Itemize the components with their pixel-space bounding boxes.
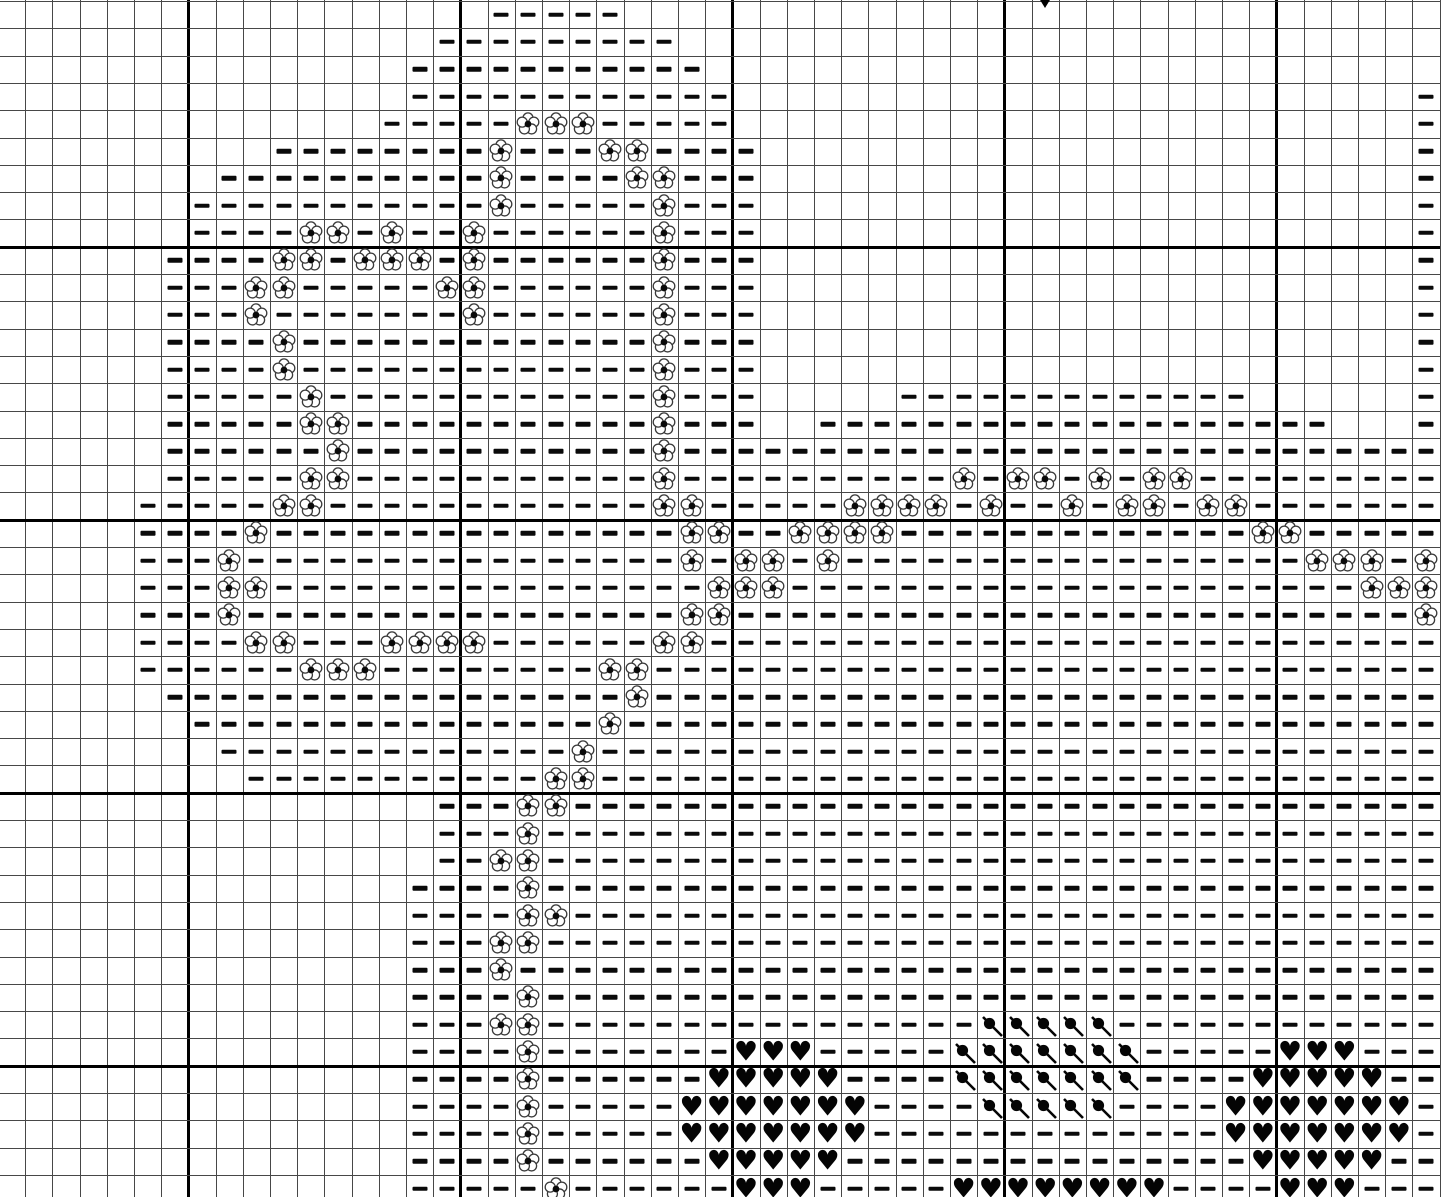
dash-stitch-symbol (575, 258, 590, 262)
dash-stitch-symbol (1038, 395, 1053, 399)
dash-stitch-symbol (521, 258, 536, 262)
dash-stitch-symbol (1147, 995, 1162, 999)
dash-stitch-symbol (1092, 695, 1107, 699)
dash-stitch-symbol (1038, 722, 1053, 726)
dash-stitch-symbol (1174, 1050, 1189, 1054)
dash-stitch-symbol (439, 176, 454, 180)
dash-stitch-symbol (983, 1159, 998, 1163)
dash-stitch-symbol (1201, 941, 1216, 945)
dash-stitch-symbol (630, 258, 645, 262)
dash-stitch-symbol (1174, 722, 1189, 726)
dash-stitch-symbol (1419, 668, 1434, 672)
dash-stitch-symbol (494, 586, 509, 590)
dash-stitch-symbol (1228, 558, 1243, 562)
dash-stitch-symbol (412, 340, 427, 344)
dash-stitch-symbol (739, 804, 754, 808)
dash-stitch-symbol (521, 94, 536, 98)
dash-stitch-symbol (358, 204, 373, 208)
dash-stitch-symbol (657, 1050, 672, 1054)
dash-stitch-symbol (1310, 477, 1325, 481)
dash-stitch-symbol (412, 668, 427, 672)
dash-stitch-symbol (1119, 586, 1134, 590)
dash-stitch-symbol (358, 722, 373, 726)
dash-stitch-symbol (603, 12, 618, 16)
dash-stitch-symbol (548, 395, 563, 399)
dash-stitch-symbol (1419, 204, 1434, 208)
dash-stitch-symbol (1201, 586, 1216, 590)
dash-stitch-symbol (494, 340, 509, 344)
dash-stitch-symbol (1283, 640, 1298, 644)
grid-line-h (0, 246, 1440, 249)
dash-stitch-symbol (548, 504, 563, 508)
dash-stitch-symbol (303, 640, 318, 644)
grid-line-v (1086, 0, 1087, 1197)
flower-stitch-symbol (272, 358, 296, 382)
dash-stitch-symbol (1011, 995, 1026, 999)
dash-stitch-symbol (521, 504, 536, 508)
dash-stitch-symbol (575, 67, 590, 71)
dash-stitch-symbol (956, 504, 971, 508)
flower-stitch-symbol (680, 521, 704, 545)
dash-stitch-symbol (1119, 395, 1134, 399)
dash-stitch-symbol (902, 831, 917, 835)
dash-stitch-symbol (1337, 668, 1352, 672)
dash-stitch-symbol (1065, 995, 1080, 999)
dash-stitch-symbol (902, 859, 917, 863)
dash-stitch-symbol (1119, 913, 1134, 917)
dash-stitch-symbol (739, 340, 754, 344)
dash-stitch-symbol (494, 1186, 509, 1190)
dash-stitch-symbol (1310, 804, 1325, 808)
grid-line-h (0, 219, 1440, 220)
dash-stitch-symbol (657, 67, 672, 71)
heart-stitch-symbol: ♥ (1304, 1120, 1331, 1147)
dash-stitch-symbol (603, 531, 618, 535)
heart-stitch-symbol: ♥ (814, 1148, 841, 1175)
dash-stitch-symbol (1283, 995, 1298, 999)
dash-stitch-symbol (657, 1159, 672, 1163)
dash-stitch-symbol (249, 695, 264, 699)
dash-stitch-symbol (548, 477, 563, 481)
grid-line-v (1358, 0, 1359, 1197)
dash-stitch-symbol (358, 231, 373, 235)
flower-stitch-symbol (1006, 467, 1030, 491)
dash-stitch-symbol (494, 695, 509, 699)
dash-stitch-symbol (467, 449, 482, 453)
dash-stitch-symbol (1337, 831, 1352, 835)
dash-stitch-symbol (575, 531, 590, 535)
flower-stitch-symbol (516, 1149, 540, 1173)
dash-stitch-symbol (1147, 886, 1162, 890)
dash-stitch-symbol (1011, 886, 1026, 890)
dash-stitch-symbol (1092, 1132, 1107, 1136)
heart-stitch-symbol: ♥ (1032, 1175, 1059, 1197)
dash-stitch-symbol (1283, 777, 1298, 781)
dash-stitch-symbol (575, 231, 590, 235)
dash-stitch-symbol (1255, 995, 1270, 999)
dash-stitch-symbol (1228, 531, 1243, 535)
heart-stitch-symbol: ♥ (841, 1093, 868, 1120)
dash-stitch-symbol (1364, 668, 1379, 672)
dash-stitch-symbol (630, 422, 645, 426)
dash-stitch-symbol (1364, 531, 1379, 535)
dash-stitch-symbol (249, 204, 264, 208)
dash-stitch-symbol (412, 695, 427, 699)
grid-line-v (1003, 0, 1006, 1197)
dash-stitch-symbol (766, 941, 781, 945)
diagonal-stitch-symbol (1059, 1012, 1085, 1038)
dash-stitch-symbol (684, 285, 699, 289)
flower-stitch-symbol (380, 248, 404, 272)
dash-stitch-symbol (439, 67, 454, 71)
dash-stitch-symbol (1255, 1050, 1270, 1054)
dash-stitch-symbol (983, 722, 998, 726)
heart-stitch-symbol: ♥ (1059, 1175, 1086, 1197)
dash-stitch-symbol (276, 531, 291, 535)
dash-stitch-symbol (276, 176, 291, 180)
dash-stitch-symbol (467, 504, 482, 508)
flower-stitch-symbol (707, 576, 731, 600)
flower-stitch-symbol (516, 1067, 540, 1091)
dash-stitch-symbol (1092, 886, 1107, 890)
dash-stitch-symbol (222, 668, 237, 672)
dash-stitch-symbol (1337, 477, 1352, 481)
dash-stitch-symbol (385, 367, 400, 371)
dash-stitch-symbol (847, 941, 862, 945)
dash-stitch-symbol (739, 313, 754, 317)
dash-stitch-symbol (1147, 640, 1162, 644)
dash-stitch-symbol (1419, 231, 1434, 235)
dash-stitch-symbol (195, 231, 210, 235)
dash-stitch-symbol (167, 504, 182, 508)
dash-stitch-symbol (1038, 913, 1053, 917)
dash-stitch-symbol (1065, 941, 1080, 945)
flower-stitch-symbol (272, 276, 296, 300)
dash-stitch-symbol (1364, 1050, 1379, 1054)
dash-stitch-symbol (847, 1159, 862, 1163)
flower-stitch-symbol (652, 221, 676, 245)
dash-stitch-symbol (1119, 941, 1134, 945)
flower-stitch-symbol (1115, 494, 1139, 518)
dash-stitch-symbol (657, 941, 672, 945)
dash-stitch-symbol (1419, 422, 1434, 426)
dash-stitch-symbol (630, 586, 645, 590)
dash-stitch-symbol (983, 859, 998, 863)
dash-stitch-symbol (983, 831, 998, 835)
dash-stitch-symbol (467, 1159, 482, 1163)
dash-stitch-symbol (222, 395, 237, 399)
dash-stitch-symbol (521, 668, 536, 672)
dash-stitch-symbol (222, 285, 237, 289)
dash-stitch-symbol (1364, 504, 1379, 508)
flower-stitch-symbol (299, 412, 323, 436)
dash-stitch-symbol (1174, 395, 1189, 399)
grid-line-v (731, 0, 734, 1197)
dash-stitch-symbol (684, 722, 699, 726)
dash-stitch-symbol (1255, 750, 1270, 754)
dash-stitch-symbol (603, 941, 618, 945)
dash-stitch-symbol (195, 367, 210, 371)
dash-stitch-symbol (711, 750, 726, 754)
flower-stitch-symbol (652, 303, 676, 327)
dash-stitch-symbol (1201, 913, 1216, 917)
diagonal-stitch-symbol (978, 1039, 1004, 1065)
heart-stitch-symbol: ♥ (1249, 1148, 1276, 1175)
dash-stitch-symbol (1119, 1023, 1134, 1027)
dash-stitch-symbol (548, 531, 563, 535)
dash-stitch-symbol (929, 886, 944, 890)
flower-stitch-symbol (489, 139, 513, 163)
dash-stitch-symbol (1092, 449, 1107, 453)
dash-stitch-symbol (1419, 367, 1434, 371)
dash-stitch-symbol (1419, 886, 1434, 890)
dash-stitch-symbol (385, 668, 400, 672)
dash-stitch-symbol (1147, 695, 1162, 699)
dash-stitch-symbol (1283, 886, 1298, 890)
dash-stitch-symbol (847, 422, 862, 426)
dash-stitch-symbol (167, 313, 182, 317)
dash-stitch-symbol (684, 313, 699, 317)
diagonal-stitch-symbol (1114, 1039, 1140, 1065)
dash-stitch-symbol (412, 477, 427, 481)
dash-stitch-symbol (875, 1077, 890, 1081)
dash-stitch-symbol (521, 149, 536, 153)
dash-stitch-symbol (1391, 1023, 1406, 1027)
dash-stitch-symbol (929, 668, 944, 672)
flower-stitch-symbol (516, 112, 540, 136)
dash-stitch-symbol (1147, 422, 1162, 426)
heart-stitch-symbol: ♥ (1277, 1175, 1304, 1197)
dash-stitch-symbol (521, 340, 536, 344)
heart-stitch-symbol: ♥ (1277, 1066, 1304, 1093)
dash-stitch-symbol (1391, 558, 1406, 562)
grid-line-v (1275, 0, 1278, 1197)
dash-stitch-symbol (603, 558, 618, 562)
dash-stitch-symbol (467, 67, 482, 71)
dash-stitch-symbol (657, 149, 672, 153)
dash-stitch-symbol (902, 995, 917, 999)
dash-stitch-symbol (1310, 831, 1325, 835)
dash-stitch-symbol (494, 504, 509, 508)
dash-stitch-symbol (1011, 831, 1026, 835)
dash-stitch-symbol (956, 449, 971, 453)
dash-stitch-symbol (467, 968, 482, 972)
dash-stitch-symbol (1174, 531, 1189, 535)
heart-stitch-symbol: ♥ (760, 1093, 787, 1120)
dash-stitch-symbol (766, 477, 781, 481)
heart-stitch-symbol: ♥ (787, 1120, 814, 1147)
dash-stitch-symbol (1092, 941, 1107, 945)
heart-stitch-symbol: ♥ (1304, 1093, 1331, 1120)
dash-stitch-symbol (249, 395, 264, 399)
dash-stitch-symbol (1174, 1132, 1189, 1136)
dash-stitch-symbol (657, 995, 672, 999)
dash-stitch-symbol (684, 122, 699, 126)
dash-stitch-symbol (575, 204, 590, 208)
dash-stitch-symbol (711, 558, 726, 562)
dash-stitch-symbol (195, 313, 210, 317)
diagonal-stitch-symbol (1005, 1066, 1031, 1092)
dash-stitch-symbol (929, 1023, 944, 1027)
heart-stitch-symbol: ♥ (733, 1175, 760, 1197)
dash-stitch-symbol (1419, 449, 1434, 453)
dash-stitch-symbol (847, 640, 862, 644)
grid-line-h (0, 165, 1440, 166)
heart-stitch-symbol: ♥ (733, 1039, 760, 1066)
dash-stitch-symbol (983, 640, 998, 644)
dash-stitch-symbol (847, 695, 862, 699)
dash-stitch-symbol (793, 968, 808, 972)
dash-stitch-symbol (902, 449, 917, 453)
flower-stitch-symbol (598, 658, 622, 682)
dash-stitch-symbol (657, 859, 672, 863)
dash-stitch-symbol (467, 831, 482, 835)
dash-stitch-symbol (439, 695, 454, 699)
dash-stitch-symbol (467, 777, 482, 781)
heart-stitch-symbol: ♥ (1358, 1120, 1385, 1147)
dash-stitch-symbol (1201, 613, 1216, 617)
dash-stitch-symbol (331, 695, 346, 699)
dash-stitch-symbol (167, 285, 182, 289)
dash-stitch-symbol (521, 695, 536, 699)
dash-stitch-symbol (412, 558, 427, 562)
dash-stitch-symbol (657, 913, 672, 917)
dash-stitch-symbol (847, 1023, 862, 1027)
dash-stitch-symbol (983, 531, 998, 535)
flower-stitch-symbol (1142, 494, 1166, 518)
dash-stitch-symbol (548, 750, 563, 754)
dash-stitch-symbol (630, 1186, 645, 1190)
dash-stitch-symbol (439, 722, 454, 726)
dash-stitch-symbol (1391, 449, 1406, 453)
dash-stitch-symbol (521, 640, 536, 644)
dash-stitch-symbol (222, 204, 237, 208)
dash-stitch-symbol (766, 886, 781, 890)
grid-line-v (705, 0, 706, 1197)
dash-stitch-symbol (630, 804, 645, 808)
dash-stitch-symbol (575, 1132, 590, 1136)
dash-stitch-symbol (1174, 886, 1189, 890)
dash-stitch-symbol (385, 313, 400, 317)
dash-stitch-symbol (1419, 695, 1434, 699)
heart-stitch-symbol: ♥ (1249, 1066, 1276, 1093)
dash-stitch-symbol (711, 695, 726, 699)
dash-stitch-symbol (412, 1104, 427, 1108)
dash-stitch-symbol (521, 285, 536, 289)
dash-stitch-symbol (902, 395, 917, 399)
dash-stitch-symbol (1011, 804, 1026, 808)
dash-stitch-symbol (875, 777, 890, 781)
dash-stitch-symbol (1065, 422, 1080, 426)
dash-stitch-symbol (902, 1186, 917, 1190)
grid-line-v (651, 0, 652, 1197)
dash-stitch-symbol (575, 449, 590, 453)
dash-stitch-symbol (412, 395, 427, 399)
dash-stitch-symbol (956, 531, 971, 535)
dash-stitch-symbol (1364, 777, 1379, 781)
dash-stitch-symbol (739, 422, 754, 426)
dash-stitch-symbol (711, 122, 726, 126)
grid-line-v (352, 0, 353, 1197)
flower-stitch-symbol (1196, 494, 1220, 518)
dash-stitch-symbol (412, 504, 427, 508)
dash-stitch-symbol (494, 449, 509, 453)
flower-stitch-symbol (680, 549, 704, 573)
dash-stitch-symbol (1201, 1077, 1216, 1081)
dash-stitch-symbol (276, 477, 291, 481)
dash-stitch-symbol (1038, 1159, 1053, 1163)
grid-line-v (678, 0, 679, 1197)
dash-stitch-symbol (684, 449, 699, 453)
dash-stitch-symbol (793, 668, 808, 672)
dash-stitch-symbol (1419, 258, 1434, 262)
dash-stitch-symbol (1310, 995, 1325, 999)
dash-stitch-symbol (521, 558, 536, 562)
dash-stitch-symbol (439, 995, 454, 999)
dash-stitch-symbol (1201, 1050, 1216, 1054)
dash-stitch-symbol (276, 777, 291, 781)
grid-line-h (0, 383, 1440, 384)
dash-stitch-symbol (820, 913, 835, 917)
dash-stitch-symbol (548, 558, 563, 562)
dash-stitch-symbol (494, 313, 509, 317)
diagonal-stitch-symbol (1032, 1039, 1058, 1065)
dash-stitch-symbol (1391, 831, 1406, 835)
dash-stitch-symbol (739, 204, 754, 208)
dash-stitch-symbol (929, 831, 944, 835)
heart-stitch-symbol: ♥ (787, 1175, 814, 1197)
heart-stitch-symbol: ♥ (705, 1066, 732, 1093)
dash-stitch-symbol (793, 831, 808, 835)
dash-stitch-symbol (303, 367, 318, 371)
dash-stitch-symbol (684, 668, 699, 672)
dash-stitch-symbol (439, 1077, 454, 1081)
dash-stitch-symbol (875, 613, 890, 617)
dash-stitch-symbol (1337, 504, 1352, 508)
dash-stitch-symbol (521, 67, 536, 71)
dash-stitch-symbol (1283, 613, 1298, 617)
dash-stitch-symbol (684, 859, 699, 863)
dash-stitch-symbol (1419, 750, 1434, 754)
dash-stitch-symbol (820, 1023, 835, 1027)
dash-stitch-symbol (1147, 1050, 1162, 1054)
dash-stitch-symbol (167, 640, 182, 644)
dash-stitch-symbol (1228, 668, 1243, 672)
dash-stitch-symbol (195, 340, 210, 344)
dash-stitch-symbol (684, 94, 699, 98)
dash-stitch-symbol (1310, 422, 1325, 426)
dash-stitch-symbol (1283, 477, 1298, 481)
dash-stitch-symbol (630, 231, 645, 235)
dash-stitch-symbol (929, 640, 944, 644)
dash-stitch-symbol (412, 750, 427, 754)
dash-stitch-symbol (1174, 668, 1189, 672)
dash-stitch-symbol (875, 422, 890, 426)
dash-stitch-symbol (467, 695, 482, 699)
grid-line-v (923, 0, 924, 1197)
dash-stitch-symbol (983, 913, 998, 917)
dash-stitch-symbol (739, 477, 754, 481)
dash-stitch-symbol (1364, 477, 1379, 481)
dash-stitch-symbol (847, 586, 862, 590)
dash-stitch-symbol (439, 804, 454, 808)
grid-line-v (624, 0, 625, 1197)
dash-stitch-symbol (739, 695, 754, 699)
dash-stitch-symbol (630, 968, 645, 972)
dash-stitch-symbol (1364, 831, 1379, 835)
diagonal-stitch-symbol (1059, 1039, 1085, 1065)
dash-stitch-symbol (1147, 1159, 1162, 1163)
